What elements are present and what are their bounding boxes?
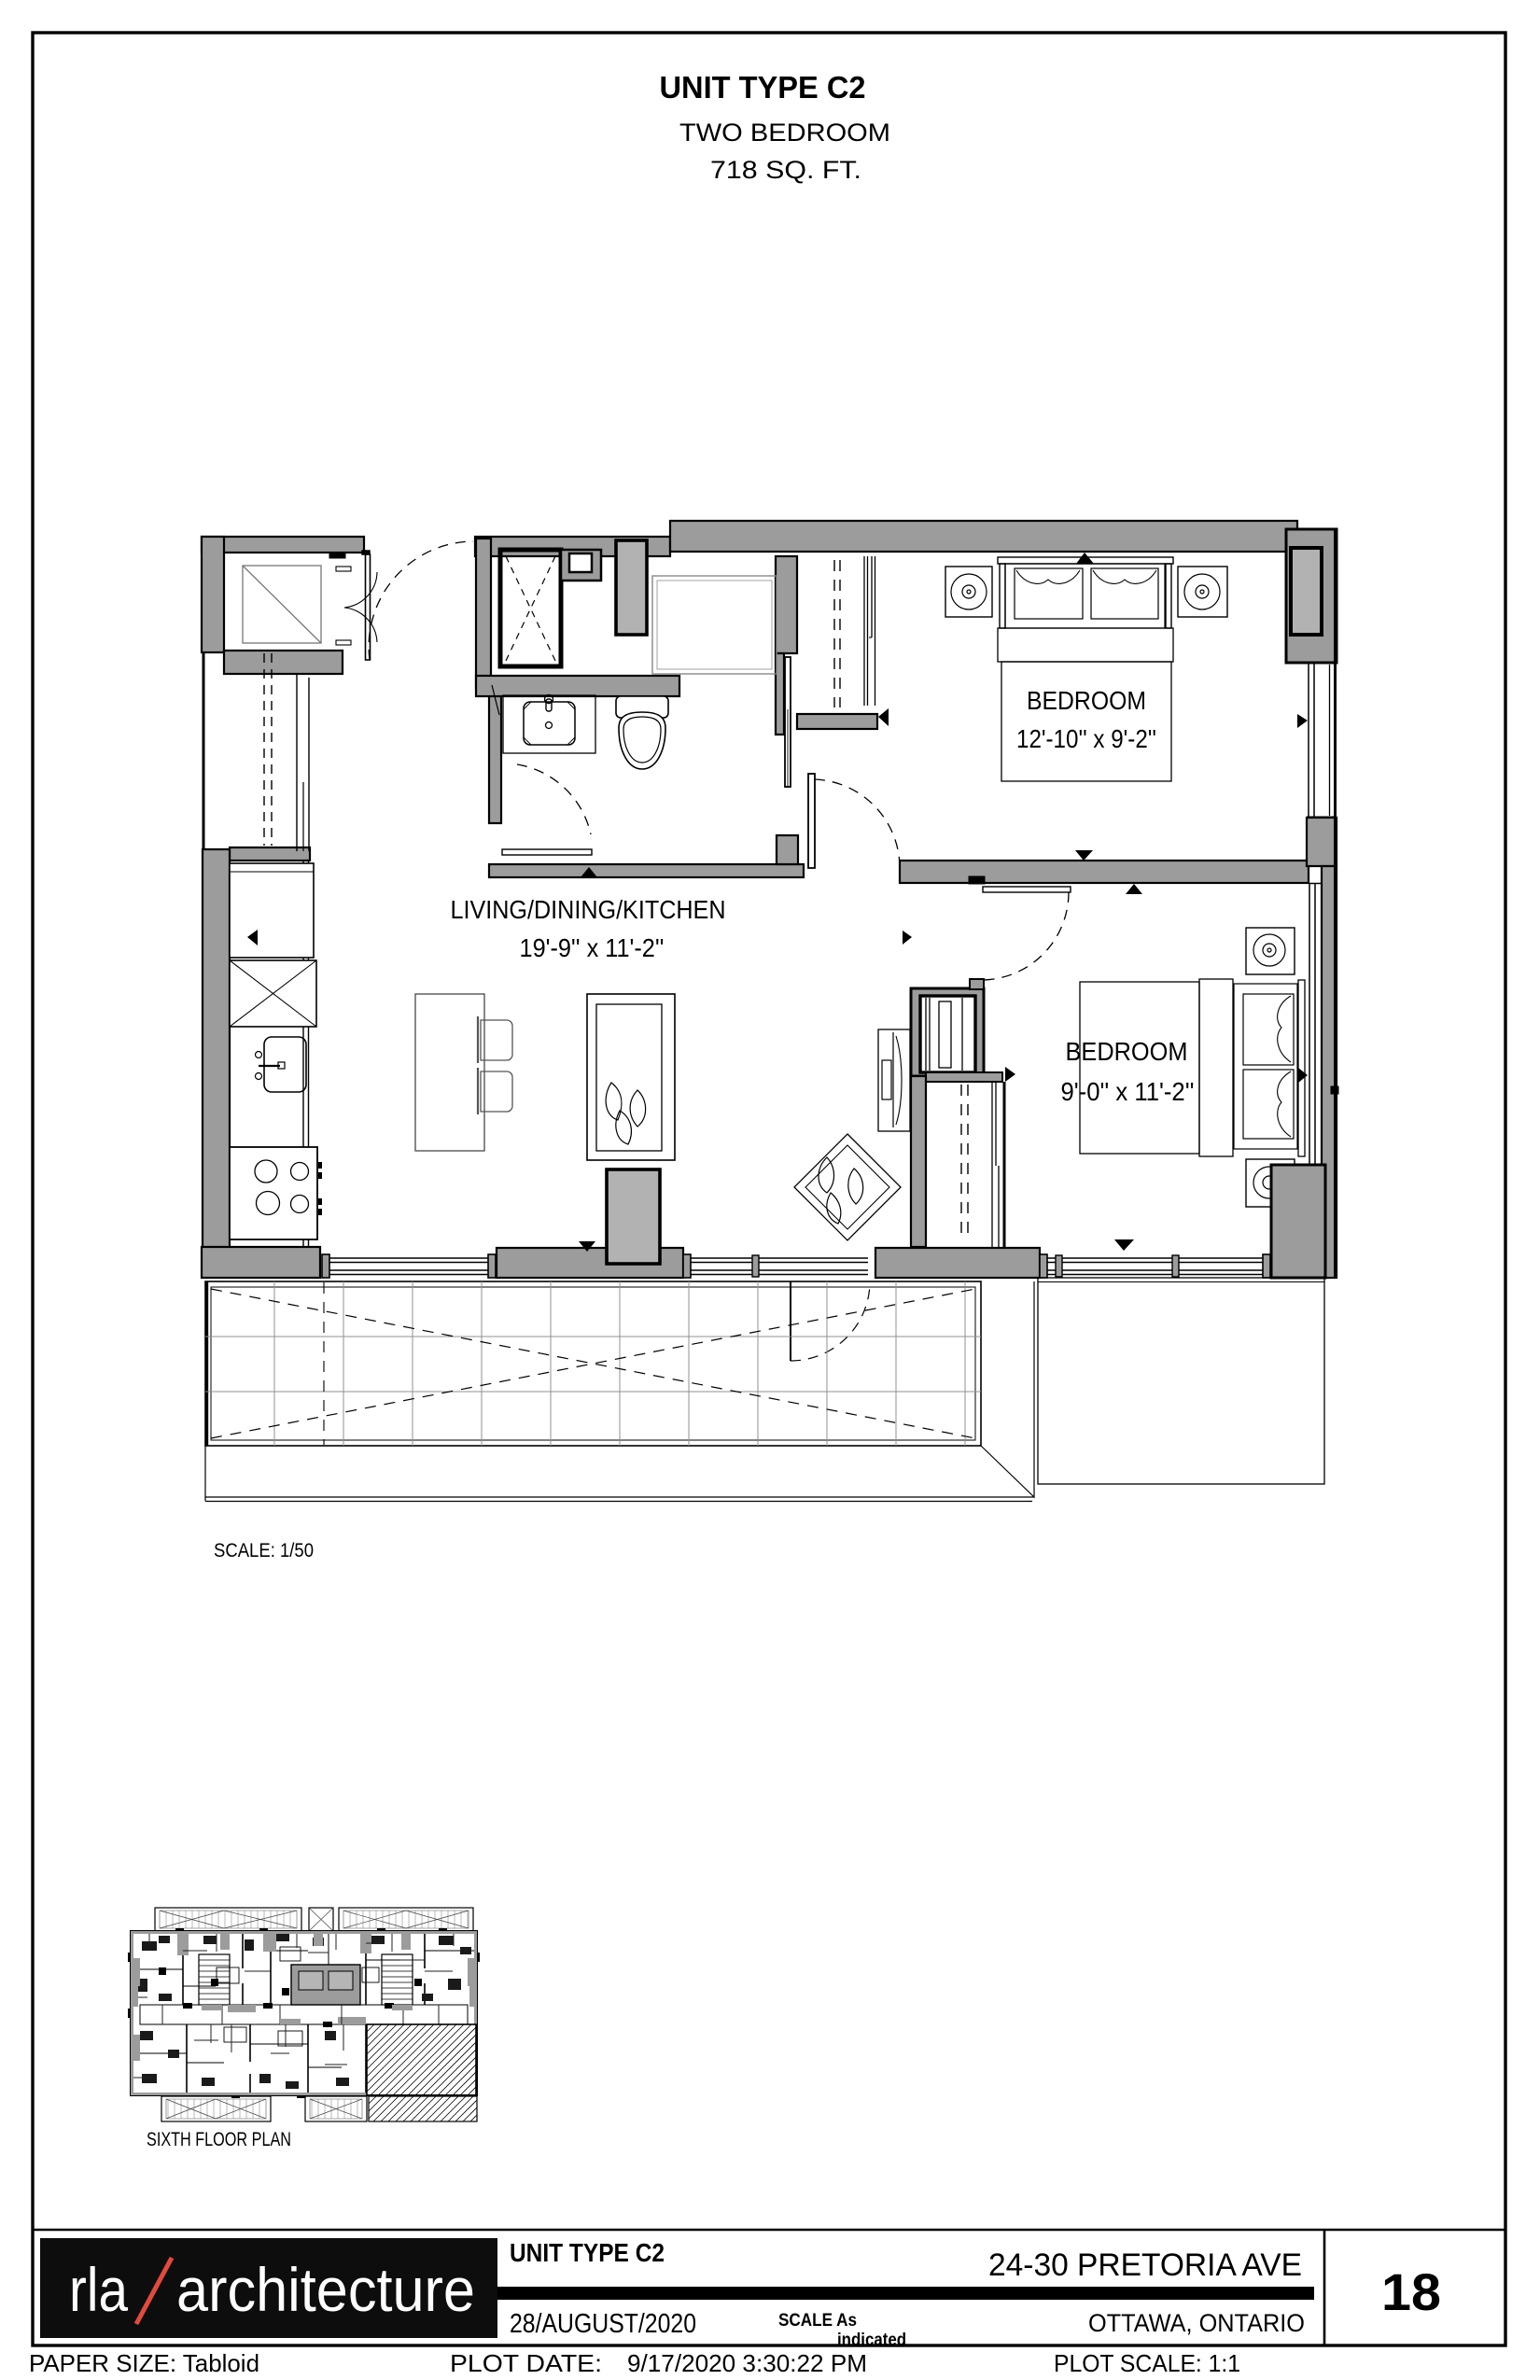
svg-text:SCALE: 1/50: SCALE: 1/50 bbox=[214, 1540, 314, 1561]
svg-text:PAPER SIZE: Tabloid: PAPER SIZE: Tabloid bbox=[29, 2349, 259, 2377]
svg-text:28/AUGUST/2020: 28/AUGUST/2020 bbox=[510, 2309, 696, 2339]
svg-text:SIXTH FLOOR PLAN: SIXTH FLOOR PLAN bbox=[147, 2129, 291, 2150]
svg-text:indicated: indicated bbox=[837, 2331, 906, 2350]
svg-text:UNIT TYPE C2: UNIT TYPE C2 bbox=[510, 2238, 665, 2267]
svg-text:TWO BEDROOM: TWO BEDROOM bbox=[679, 119, 890, 147]
svg-text:UNIT TYPE C2: UNIT TYPE C2 bbox=[660, 70, 866, 105]
svg-text:LIVING/DINING/KITCHEN: LIVING/DINING/KITCHEN bbox=[451, 895, 726, 924]
svg-text:18: 18 bbox=[1381, 2262, 1441, 2321]
svg-text:19'-9'' x 11'-2'': 19'-9'' x 11'-2'' bbox=[520, 933, 665, 962]
svg-text:SCALE As: SCALE As bbox=[778, 2311, 857, 2331]
svg-text:BEDROOM: BEDROOM bbox=[1027, 686, 1146, 715]
svg-text:24-30 PRETORIA AVE: 24-30 PRETORIA AVE bbox=[988, 2247, 1302, 2283]
svg-text:architecture: architecture bbox=[176, 2255, 475, 2324]
svg-text:rla: rla bbox=[69, 2255, 128, 2324]
svg-text:OTTAWA, ONTARIO: OTTAWA, ONTARIO bbox=[1088, 2309, 1305, 2337]
svg-text:12'-10'' x 9'-2'': 12'-10'' x 9'-2'' bbox=[1016, 724, 1156, 753]
svg-text:9/17/2020 3:30:22 PM: 9/17/2020 3:30:22 PM bbox=[627, 2349, 867, 2377]
svg-text:PLOT SCALE: 1:1: PLOT SCALE: 1:1 bbox=[1054, 2349, 1240, 2377]
svg-text:BEDROOM: BEDROOM bbox=[1066, 1037, 1188, 1066]
svg-text:PLOT DATE:: PLOT DATE: bbox=[450, 2349, 602, 2377]
svg-text:9'-0'' x 11'-2'': 9'-0'' x 11'-2'' bbox=[1061, 1077, 1195, 1106]
svg-text:718 SQ. FT.: 718 SQ. FT. bbox=[710, 156, 861, 184]
